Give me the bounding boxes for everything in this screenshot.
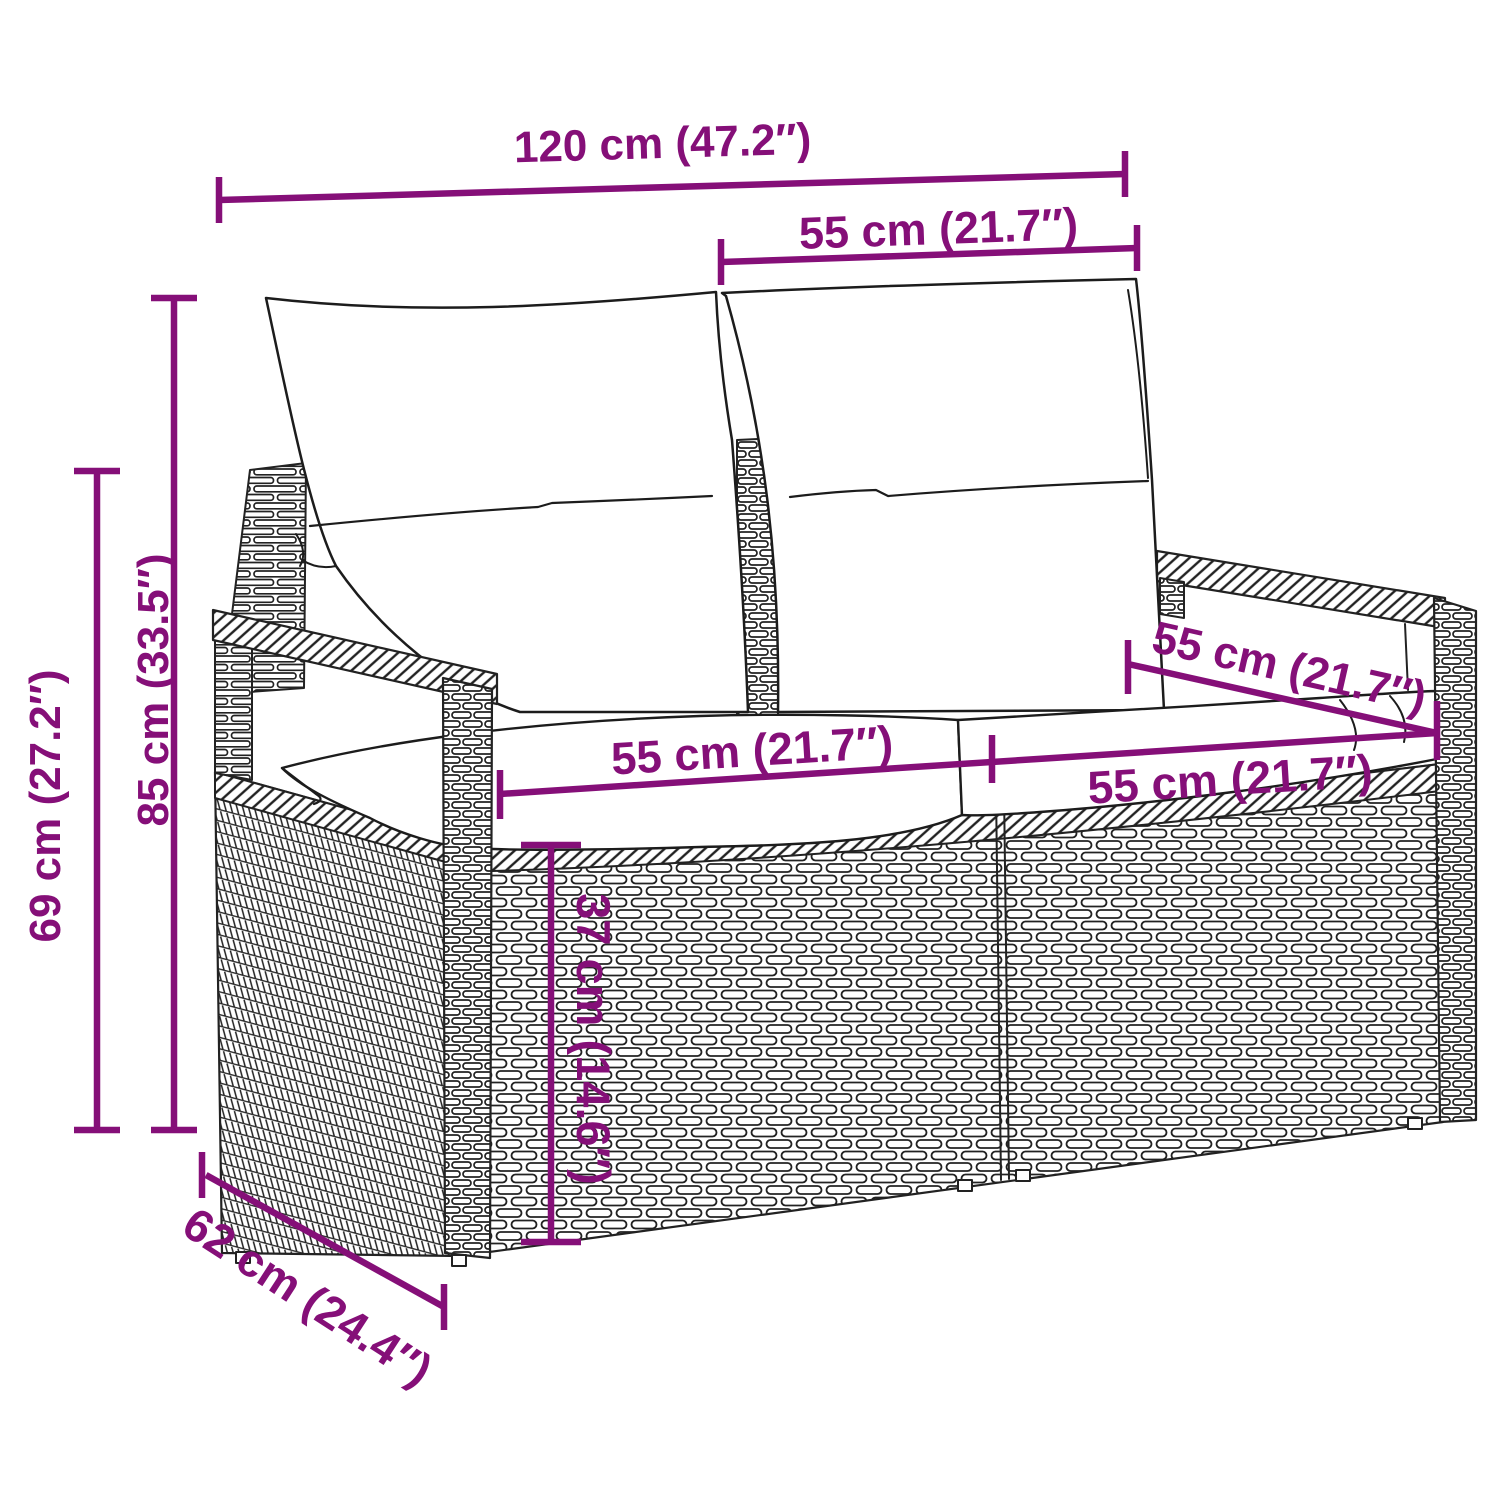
svg-text:120 cm (47.2″): 120 cm (47.2″) bbox=[513, 115, 812, 173]
svg-text:37 cm (14.6″): 37 cm (14.6″) bbox=[567, 893, 620, 1185]
svg-text:85 cm (33.5″): 85 cm (33.5″) bbox=[129, 553, 178, 826]
svg-text:69 cm (27.2″): 69 cm (27.2″) bbox=[21, 669, 70, 942]
svg-text:55 cm (21.7″): 55 cm (21.7″) bbox=[798, 198, 1079, 259]
